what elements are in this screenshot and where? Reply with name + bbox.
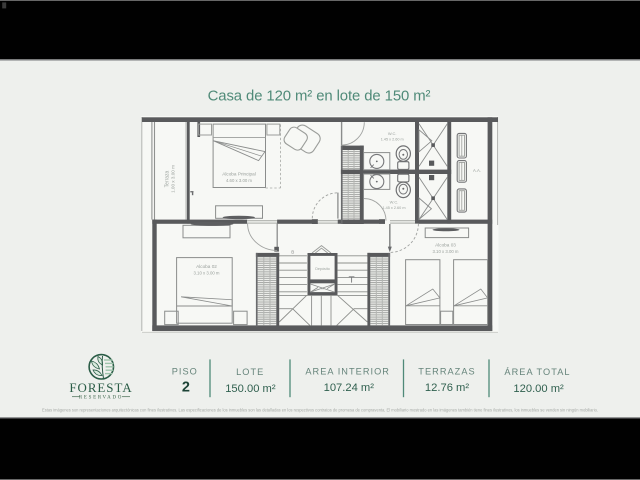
svg-text:RESERVADO: RESERVADO <box>79 396 123 401</box>
svg-text:4.60 x 3.00 m: 4.60 x 3.00 m <box>226 178 252 183</box>
svg-text:3.10 x 3.00 m: 3.10 x 3.00 m <box>432 249 458 254</box>
svg-text:12.76 m²: 12.76 m² <box>425 382 469 394</box>
svg-text:107.24 m²: 107.24 m² <box>324 382 375 394</box>
svg-text:FORESTA: FORESTA <box>69 381 132 395</box>
svg-text:Alcoba 02: Alcoba 02 <box>196 264 217 269</box>
svg-text:Estas imágenes son representac: Estas imágenes son representaciones arqu… <box>42 407 598 412</box>
svg-text:1.45 x 2.60 m: 1.45 x 2.60 m <box>381 138 404 142</box>
svg-text:ÁREA TOTAL: ÁREA TOTAL <box>504 367 570 377</box>
svg-text:B: B <box>291 250 294 255</box>
svg-text:m: m <box>321 287 324 291</box>
svg-text:W.C.: W.C. <box>390 200 399 205</box>
svg-text:LOTE: LOTE <box>236 367 264 377</box>
svg-text:AREA INTERIOR: AREA INTERIOR <box>305 367 390 377</box>
svg-text:TERRAZAS: TERRAZAS <box>418 366 475 376</box>
svg-text:Depósito: Depósito <box>315 267 330 271</box>
svg-text:Alcoba 03: Alcoba 03 <box>435 242 456 247</box>
svg-text:3.10 x 3.00 m: 3.10 x 3.00 m <box>193 270 219 275</box>
svg-text:1.00 x 3.00 m: 1.00 x 3.00 m <box>170 165 175 193</box>
svg-text:120.00 m²: 120.00 m² <box>513 383 564 395</box>
svg-text:A.A.: A.A. <box>473 168 481 173</box>
svg-text:Casa de 120 m² en lote de 150: Casa de 120 m² en lote de 150 m² <box>208 89 431 105</box>
svg-text:PISO: PISO <box>172 367 198 377</box>
svg-text:W.C.: W.C. <box>388 131 397 136</box>
svg-text:Alcoba Principal: Alcoba Principal <box>222 171 256 176</box>
svg-text:150.00 m²: 150.00 m² <box>225 383 276 395</box>
svg-text:2: 2 <box>182 380 190 396</box>
svg-text:1.45 x 2.60 m: 1.45 x 2.60 m <box>382 206 405 210</box>
